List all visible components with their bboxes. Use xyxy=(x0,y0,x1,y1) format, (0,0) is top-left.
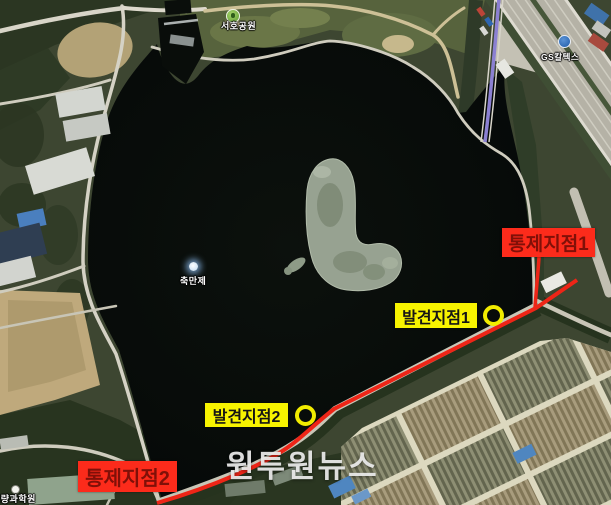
control-point-2-label: 통제지점2 xyxy=(78,461,177,492)
news-map-image: 서호공원 GS칼텍스 축만제 식량과학원 통제지점1 통제지점2 발견지점1 발… xyxy=(0,0,611,505)
discovery-point-2-label: 발견지점2 xyxy=(205,403,288,427)
news-watermark: 원투원뉴스 xyxy=(226,441,379,486)
poi-label-crop-science: 식량과학원 xyxy=(0,492,36,505)
discovery-point-1-label: 발견지점1 xyxy=(395,303,477,328)
discovery-point-2-ring-icon xyxy=(295,405,316,426)
control-point-1-label: 통제지점1 xyxy=(502,228,595,257)
poi-label-gs-caltex: GS칼텍스 xyxy=(541,51,579,63)
discovery-point-1-ring-icon xyxy=(483,305,504,326)
reservoir-marker-icon xyxy=(189,262,198,271)
poi-label-chukmanje: 축만제 xyxy=(180,274,206,287)
poi-label-seoho-park: 서호공원 xyxy=(221,19,256,32)
gas-station-marker-icon xyxy=(558,35,571,48)
